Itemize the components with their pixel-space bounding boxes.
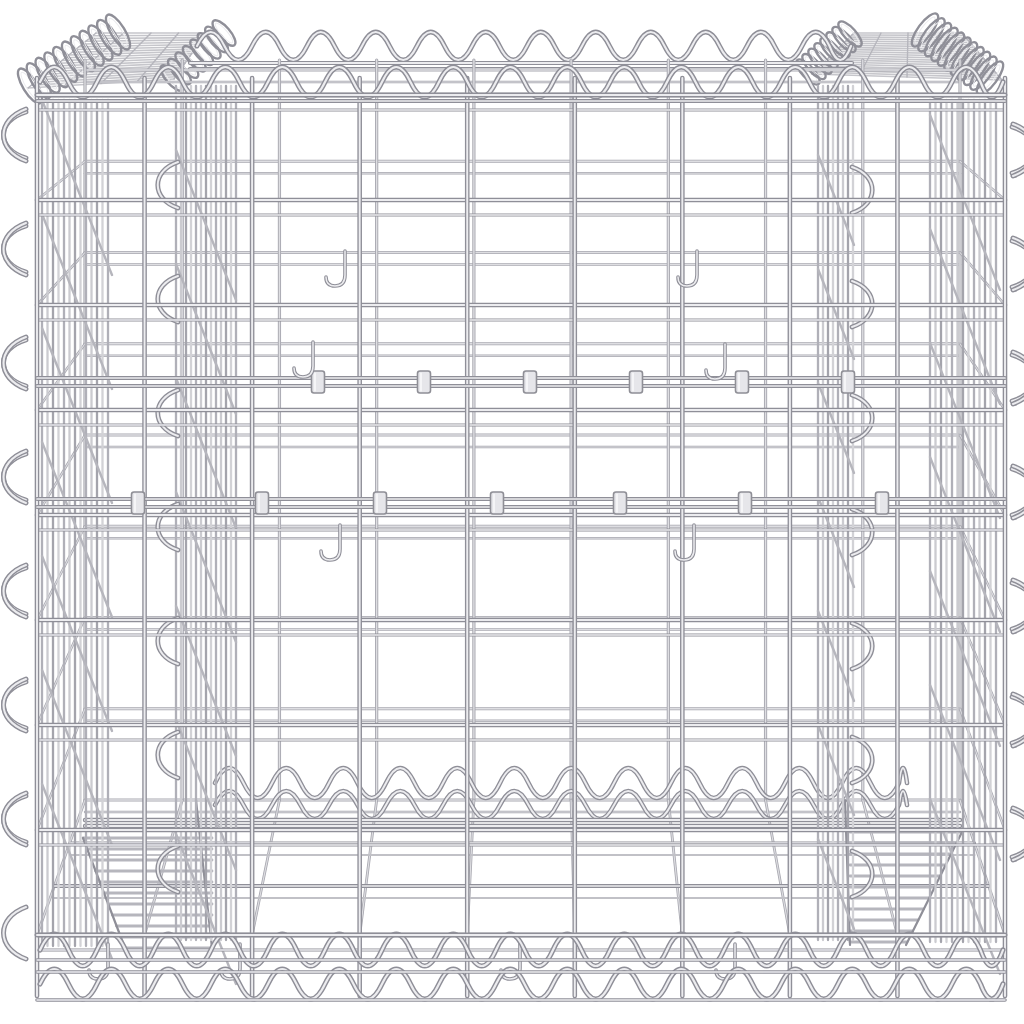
wire-sleeve-clip — [736, 371, 749, 393]
product-photo — [0, 0, 1024, 1024]
wire-sleeve-clip — [418, 371, 431, 393]
wire-sleeve-clip — [739, 492, 752, 514]
gabion-basket-rendering — [0, 0, 1024, 1024]
wire-sleeve-clip — [630, 371, 643, 393]
wire-sleeve-clip — [132, 492, 145, 514]
wire-sleeve-clip — [312, 371, 325, 393]
wire-sleeve-clip — [374, 492, 387, 514]
wire-sleeve-clip — [256, 492, 269, 514]
wire-sleeve-clip — [842, 371, 855, 393]
wire-sleeve-clip — [614, 492, 627, 514]
wire-sleeve-clip — [491, 492, 504, 514]
wire-sleeve-clip — [876, 492, 889, 514]
wire-sleeve-clip — [524, 371, 537, 393]
